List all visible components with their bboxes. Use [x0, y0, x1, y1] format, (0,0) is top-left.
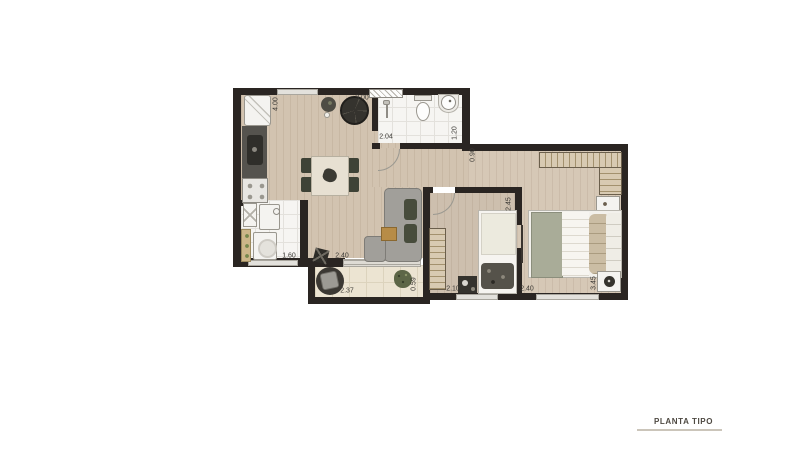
shower-column-icon [386, 103, 388, 118]
bedroom1-blanket [531, 212, 563, 278]
bedroom1-pillow [606, 213, 621, 275]
sofa-cushion [404, 224, 417, 243]
wall-service-living [300, 200, 308, 260]
bedroom2-blanket [481, 213, 516, 255]
bedroom1-door-leaf [521, 225, 523, 263]
washing-machine [253, 232, 277, 260]
bedroom2-wardrobe [429, 228, 446, 290]
kitchen-window [277, 89, 318, 95]
toilet-tank [414, 95, 432, 101]
balcony-chair [319, 270, 339, 290]
sofa-cushion [404, 199, 417, 220]
dim-balcony-width: 2.37 [340, 288, 354, 295]
washing-machine-drum-icon [258, 239, 277, 258]
dim-bathroom-width: 2.04 [379, 134, 393, 141]
dim-bathroom-depth: 1.20 [452, 126, 459, 140]
washer [259, 204, 280, 230]
title-underline [637, 429, 722, 431]
bedroom1-pillow [589, 214, 607, 274]
shower-head-icon [383, 100, 390, 105]
sofa-tray-table [381, 227, 397, 241]
bedroom1-window [536, 294, 599, 300]
dim-bedroom2-width: 2.10 [446, 286, 460, 293]
bedroom1-wardrobe-top [539, 152, 622, 168]
dim-living-width: 2.40 [335, 253, 349, 260]
laundry-window [248, 260, 298, 266]
washer-dial-icon [273, 208, 280, 215]
plant-shelf [241, 229, 251, 262]
floor-plan-canvas: 4.00 3.00 2.04 1.20 0.90 2.45 1.60 2.40 … [0, 0, 800, 449]
nightstand-speaker-icon [604, 276, 615, 287]
dim-bedroom1-depth: 3.45 [591, 276, 598, 290]
laundry-tank [243, 203, 257, 227]
fridge [244, 95, 271, 126]
bedroom2-window [456, 294, 498, 300]
bedroom1-nightstand-bottom [597, 271, 621, 292]
dim-hall-width: 0.90 [470, 148, 477, 162]
plan-title: PLANTA TIPO [654, 417, 713, 426]
bathroom-window [369, 89, 403, 98]
kitchen-faucet [252, 147, 257, 152]
wall-bedroom2-top-b [455, 187, 522, 193]
wall-suite-right [621, 144, 628, 300]
balcony-plant-icon [394, 270, 412, 288]
wall-top [233, 88, 470, 95]
dim-living-top-width: 3.00 [355, 95, 369, 102]
dim-bedroom1-width: 2.40 [520, 286, 534, 293]
stool-dot-icon [471, 287, 475, 291]
bedroom1-duvet [562, 212, 589, 276]
wall-left [233, 88, 241, 266]
wall-bathroom-bottom-b [400, 143, 470, 149]
wall-bathroom-left [372, 93, 378, 131]
wall-suite-top [462, 144, 628, 151]
bedroom2-pillow [481, 263, 514, 289]
wall-bathroom-right [462, 88, 470, 148]
side-table [321, 97, 336, 112]
bedroom2-stool [458, 276, 477, 293]
dim-kitchen-wall-height: 4.00 [273, 97, 280, 111]
bedroom2-bed [478, 210, 517, 294]
bedroom1-wardrobe-corner [599, 167, 622, 195]
dim-balcony-depth: 0.59 [411, 277, 418, 291]
stool-dot-icon [462, 280, 468, 286]
dim-service-width: 1.60 [282, 253, 296, 260]
coffee-cup [324, 112, 330, 118]
stove [242, 178, 268, 203]
wall-bedroom2-top-a [423, 187, 433, 193]
bathroom-sink-basin [441, 95, 456, 110]
dim-bedroom2-depth: 2.45 [506, 197, 513, 211]
bedroom1-bed [528, 210, 622, 278]
wall-balcony-bottom [308, 297, 430, 304]
